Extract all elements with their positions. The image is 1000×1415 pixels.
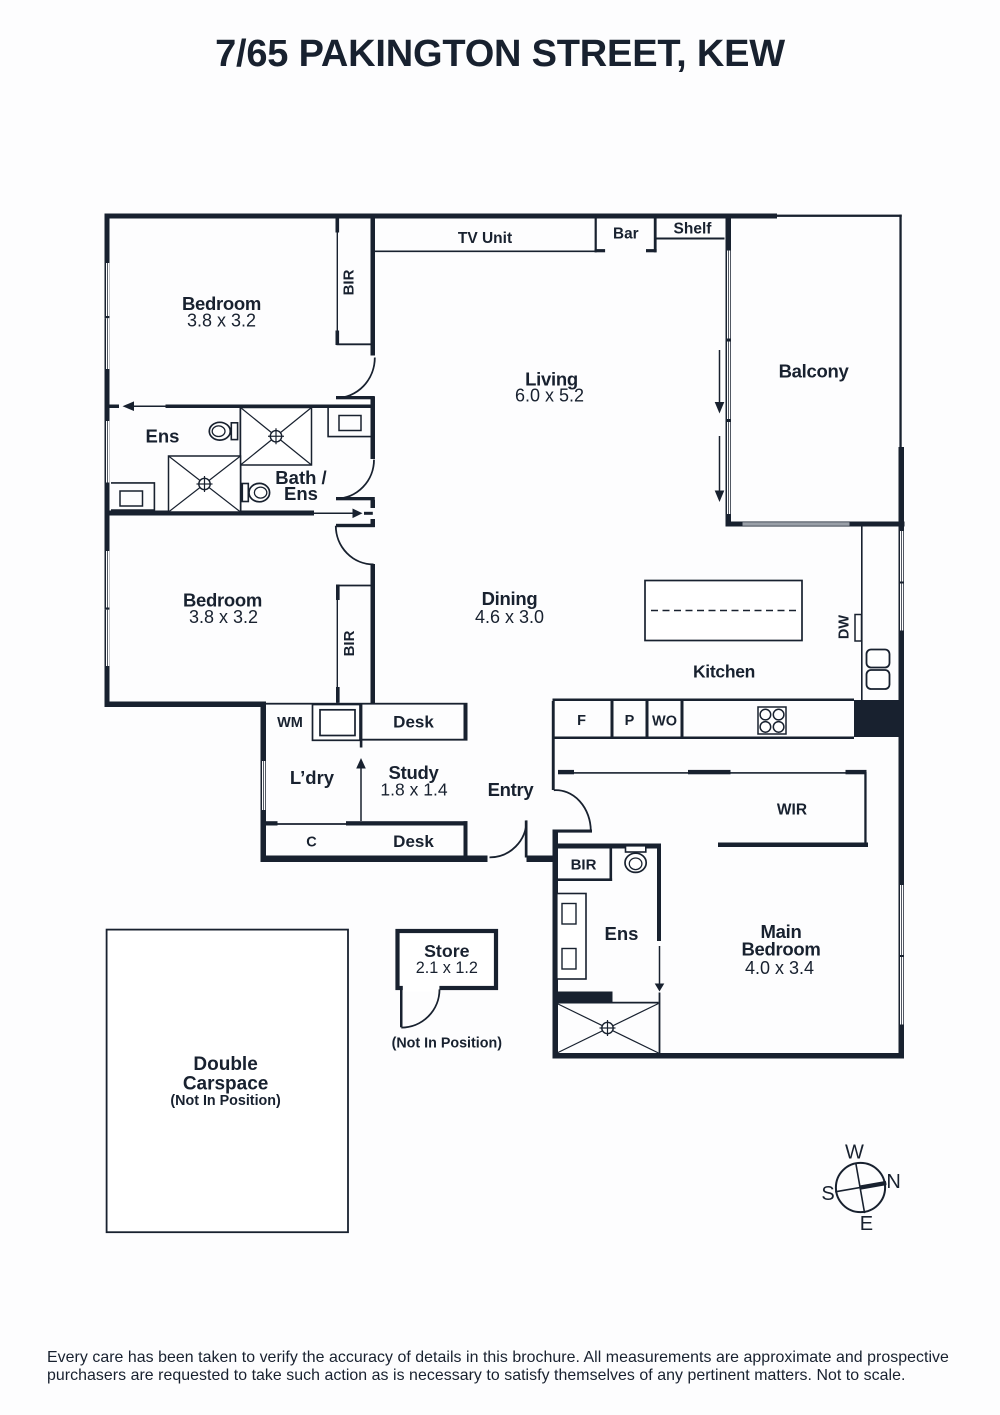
svg-text:Desk: Desk: [393, 832, 434, 851]
svg-text:N: N: [886, 1171, 900, 1193]
svg-text:C: C: [306, 835, 317, 851]
svg-text:W: W: [845, 1142, 864, 1164]
svg-text:Shelf: Shelf: [674, 221, 713, 238]
svg-text:Ens: Ens: [605, 923, 639, 944]
svg-text:WO: WO: [652, 714, 677, 730]
svg-text:BIR: BIR: [341, 630, 358, 656]
svg-text:BIR: BIR: [341, 269, 358, 295]
svg-text:Ens: Ens: [146, 426, 180, 447]
svg-text:Balcony: Balcony: [779, 360, 850, 381]
svg-text:4.0 x 3.4: 4.0 x 3.4: [745, 958, 814, 978]
svg-text:Ens: Ens: [284, 483, 318, 504]
svg-text:Double: Double: [193, 1054, 257, 1075]
svg-text:4.6 x 3.0: 4.6 x 3.0: [475, 607, 544, 627]
svg-text:1.8 x 1.4: 1.8 x 1.4: [380, 780, 447, 800]
svg-text:Carspace: Carspace: [183, 1074, 269, 1095]
svg-text:(Not In Position): (Not In Position): [392, 1036, 503, 1052]
svg-text:Store: Store: [424, 941, 470, 961]
svg-text:WIR: WIR: [777, 801, 807, 818]
svg-text:S: S: [821, 1183, 834, 1205]
svg-text:2.1 x 1.2: 2.1 x 1.2: [416, 959, 478, 977]
svg-text:E: E: [860, 1213, 873, 1235]
svg-text:Bedroom: Bedroom: [741, 939, 820, 960]
svg-text:Dining: Dining: [482, 588, 538, 609]
svg-text:6.0 x 5.2: 6.0 x 5.2: [515, 386, 584, 406]
svg-text:WM: WM: [277, 715, 303, 731]
svg-text:Bar: Bar: [613, 225, 639, 242]
svg-text:(Not In Position): (Not In Position): [170, 1093, 281, 1109]
svg-text:Kitchen: Kitchen: [693, 661, 755, 681]
svg-text:DW: DW: [837, 615, 853, 639]
svg-text:3.8 x 3.2: 3.8 x 3.2: [187, 311, 256, 331]
svg-text:3.8 x 3.2: 3.8 x 3.2: [189, 607, 258, 627]
svg-text:L’dry: L’dry: [290, 767, 335, 788]
svg-text:BIR: BIR: [571, 857, 597, 874]
svg-text:Desk: Desk: [393, 713, 434, 732]
svg-text:F: F: [577, 713, 586, 729]
svg-text:TV Unit: TV Unit: [458, 230, 512, 247]
svg-text:P: P: [625, 713, 635, 729]
svg-text:Entry: Entry: [488, 779, 535, 800]
